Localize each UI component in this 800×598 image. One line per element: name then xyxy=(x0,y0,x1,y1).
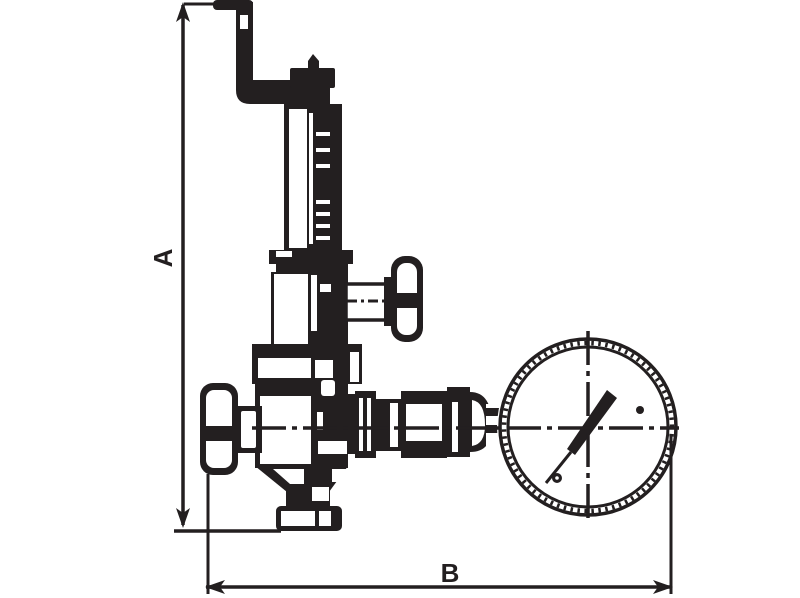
side-tee-handle xyxy=(346,256,423,342)
adjustment-crank-handle xyxy=(213,0,296,104)
gauge-dial-dot xyxy=(636,406,644,414)
drawing-svg: A B xyxy=(0,0,800,598)
valve-technical-drawing: A B xyxy=(0,0,800,598)
dimension-a-label: A xyxy=(148,248,178,267)
mid-column xyxy=(271,272,348,352)
adjustment-screw-cap xyxy=(290,54,335,106)
bonnet-collar xyxy=(269,250,353,272)
valve-body xyxy=(255,380,348,492)
union-fittings xyxy=(348,387,506,458)
bottom-outlet-flange xyxy=(276,487,342,531)
body-top-flange xyxy=(252,344,362,384)
spring-bonnet xyxy=(284,104,342,252)
dimension-b-label: B xyxy=(441,558,460,588)
ink-layer: A B xyxy=(148,0,679,594)
